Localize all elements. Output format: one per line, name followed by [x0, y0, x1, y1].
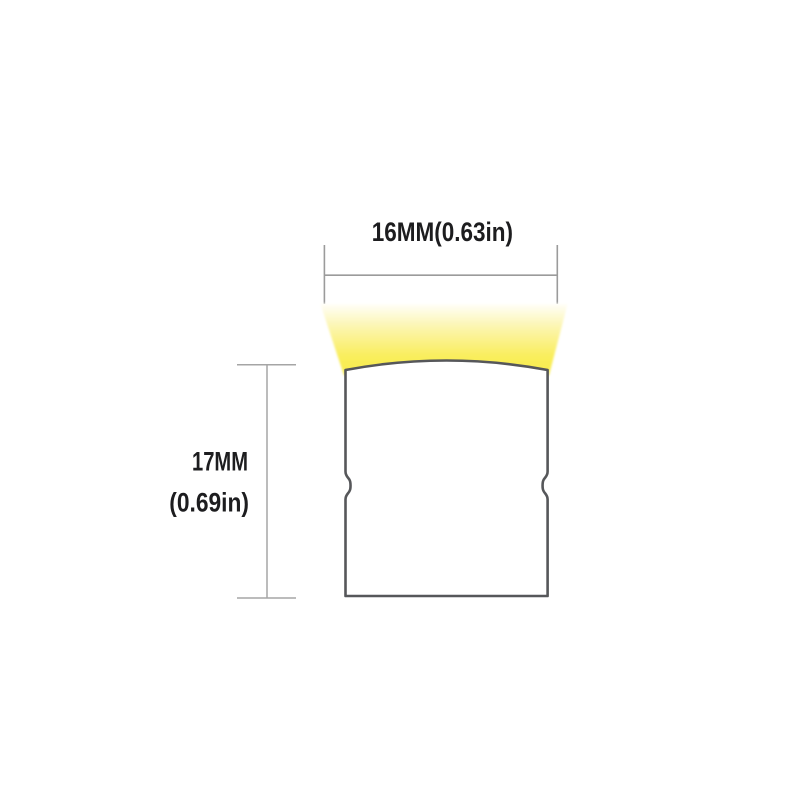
svg-text:(0.69in): (0.69in) [169, 488, 249, 518]
svg-text:17MM: 17MM [192, 447, 248, 477]
svg-text:16MM(0.63in): 16MM(0.63in) [372, 217, 513, 247]
